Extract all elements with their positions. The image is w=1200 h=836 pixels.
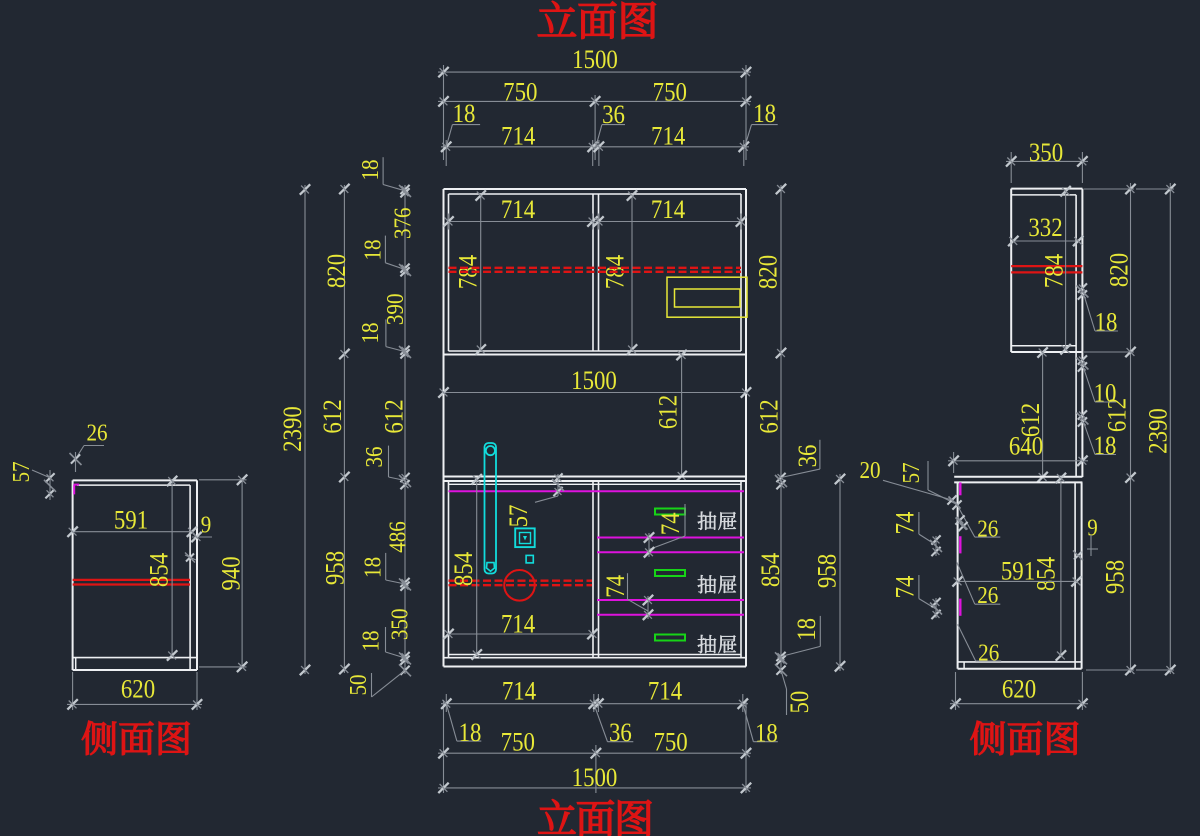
svg-text:612: 612	[380, 399, 409, 433]
svg-text:18: 18	[459, 718, 482, 747]
svg-text:714: 714	[501, 610, 535, 639]
svg-text:620: 620	[121, 675, 155, 704]
svg-text:714: 714	[501, 121, 535, 150]
svg-text:350: 350	[387, 609, 413, 641]
svg-text:36: 36	[793, 445, 822, 468]
svg-text:958: 958	[320, 551, 349, 585]
svg-text:332: 332	[1028, 213, 1062, 242]
svg-text:350: 350	[1029, 138, 1063, 167]
svg-text:376: 376	[390, 207, 416, 239]
svg-text:18: 18	[1095, 308, 1118, 337]
svg-text:591: 591	[1001, 557, 1035, 586]
svg-text:74: 74	[601, 575, 630, 598]
svg-text:958: 958	[1101, 560, 1130, 594]
svg-text:750: 750	[501, 728, 535, 757]
svg-text:390: 390	[383, 293, 409, 325]
svg-text:1500: 1500	[572, 763, 618, 792]
svg-text:18: 18	[359, 630, 385, 651]
svg-text:18: 18	[753, 99, 776, 128]
svg-text:620: 620	[1002, 675, 1036, 704]
svg-text:18: 18	[792, 618, 821, 641]
svg-text:750: 750	[653, 78, 687, 107]
svg-text:10: 10	[1094, 379, 1117, 408]
svg-text:20: 20	[859, 458, 880, 484]
svg-text:750: 750	[503, 78, 537, 107]
svg-text:26: 26	[86, 420, 107, 446]
svg-text:820: 820	[1105, 253, 1134, 287]
svg-text:714: 714	[648, 676, 682, 705]
svg-text:612: 612	[654, 395, 683, 429]
svg-text:36: 36	[602, 100, 625, 129]
svg-text:18: 18	[1094, 431, 1117, 460]
svg-text:854: 854	[1032, 557, 1061, 591]
svg-text:2390: 2390	[278, 406, 307, 452]
svg-text:9: 9	[1087, 515, 1098, 541]
svg-text:714: 714	[502, 676, 536, 705]
svg-text:854: 854	[449, 552, 478, 586]
svg-text:714: 714	[501, 195, 535, 224]
svg-text:26: 26	[977, 583, 998, 609]
svg-text:74: 74	[891, 576, 920, 599]
svg-text:36: 36	[362, 446, 388, 467]
svg-text:57: 57	[504, 505, 533, 528]
svg-text:57: 57	[899, 462, 925, 483]
svg-text:750: 750	[653, 728, 687, 757]
svg-text:50: 50	[785, 691, 814, 714]
svg-text:958: 958	[813, 554, 842, 588]
svg-text:36: 36	[609, 718, 632, 747]
svg-text:784: 784	[1040, 254, 1069, 288]
svg-text:940: 940	[217, 556, 246, 590]
svg-text:486: 486	[386, 521, 412, 553]
svg-text:612: 612	[755, 399, 784, 433]
svg-text:854: 854	[756, 553, 785, 587]
svg-text:50: 50	[346, 674, 372, 695]
svg-text:18: 18	[360, 239, 386, 260]
svg-text:640: 640	[1009, 432, 1043, 461]
svg-text:18: 18	[358, 322, 384, 343]
svg-text:1500: 1500	[571, 366, 617, 395]
svg-text:26: 26	[978, 640, 999, 666]
svg-text:2390: 2390	[1144, 408, 1173, 454]
svg-text:612: 612	[318, 399, 347, 433]
svg-text:820: 820	[322, 254, 351, 288]
svg-text:74: 74	[891, 512, 920, 535]
svg-text:591: 591	[114, 506, 148, 535]
svg-text:18: 18	[358, 159, 384, 180]
svg-text:9: 9	[201, 512, 212, 538]
svg-text:18: 18	[755, 719, 778, 748]
svg-text:18: 18	[453, 99, 476, 128]
svg-text:714: 714	[651, 195, 685, 224]
svg-text:57: 57	[9, 461, 35, 482]
svg-text:714: 714	[651, 121, 685, 150]
svg-text:820: 820	[754, 255, 783, 289]
svg-text:18: 18	[361, 557, 387, 578]
svg-text:74: 74	[656, 512, 685, 535]
svg-text:854: 854	[145, 553, 174, 587]
svg-text:1500: 1500	[572, 45, 618, 74]
svg-text:26: 26	[977, 516, 998, 542]
